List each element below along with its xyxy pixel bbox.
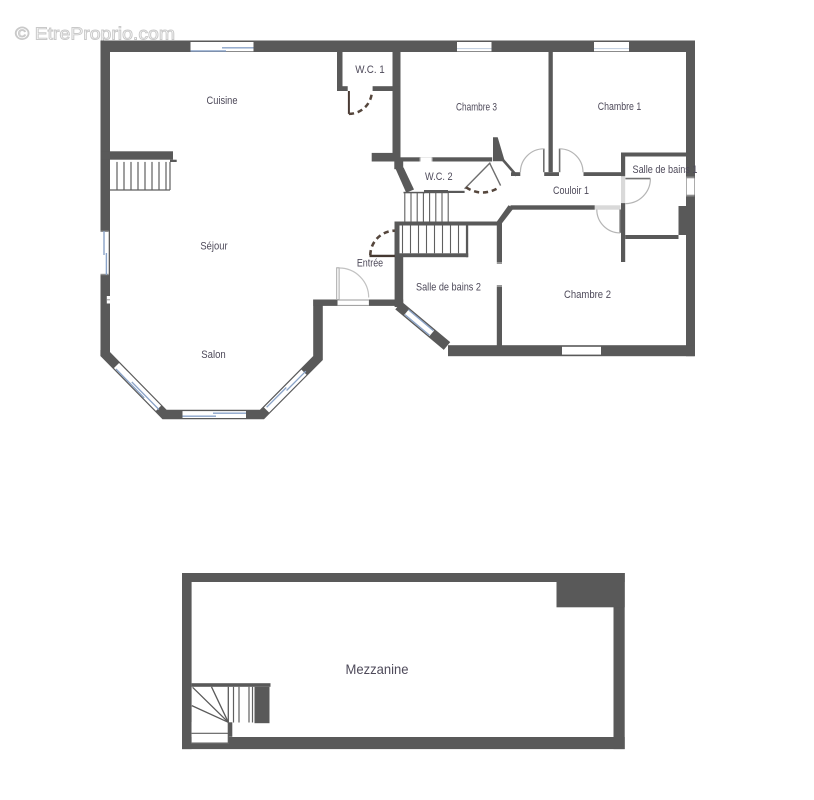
svg-text:Séjour: Séjour — [200, 241, 228, 253]
svg-text:Chambre 1: Chambre 1 — [598, 101, 642, 113]
svg-text:Salon: Salon — [201, 349, 226, 361]
svg-text:Mezzanine: Mezzanine — [346, 661, 409, 677]
svg-text:Salle de bains 2: Salle de bains 2 — [416, 282, 481, 294]
svg-text:Entrée: Entrée — [357, 258, 383, 270]
svg-text:Chambre 3: Chambre 3 — [456, 101, 497, 113]
svg-text:Salle de bains 1: Salle de bains 1 — [633, 164, 698, 176]
svg-text:W.C. 2: W.C. 2 — [425, 171, 453, 183]
svg-text:Couloir 1: Couloir 1 — [553, 185, 589, 197]
svg-text:Cuisine: Cuisine — [207, 95, 238, 107]
svg-text:Chambre 2: Chambre 2 — [564, 289, 611, 301]
svg-text:W.C. 1: W.C. 1 — [355, 64, 385, 76]
